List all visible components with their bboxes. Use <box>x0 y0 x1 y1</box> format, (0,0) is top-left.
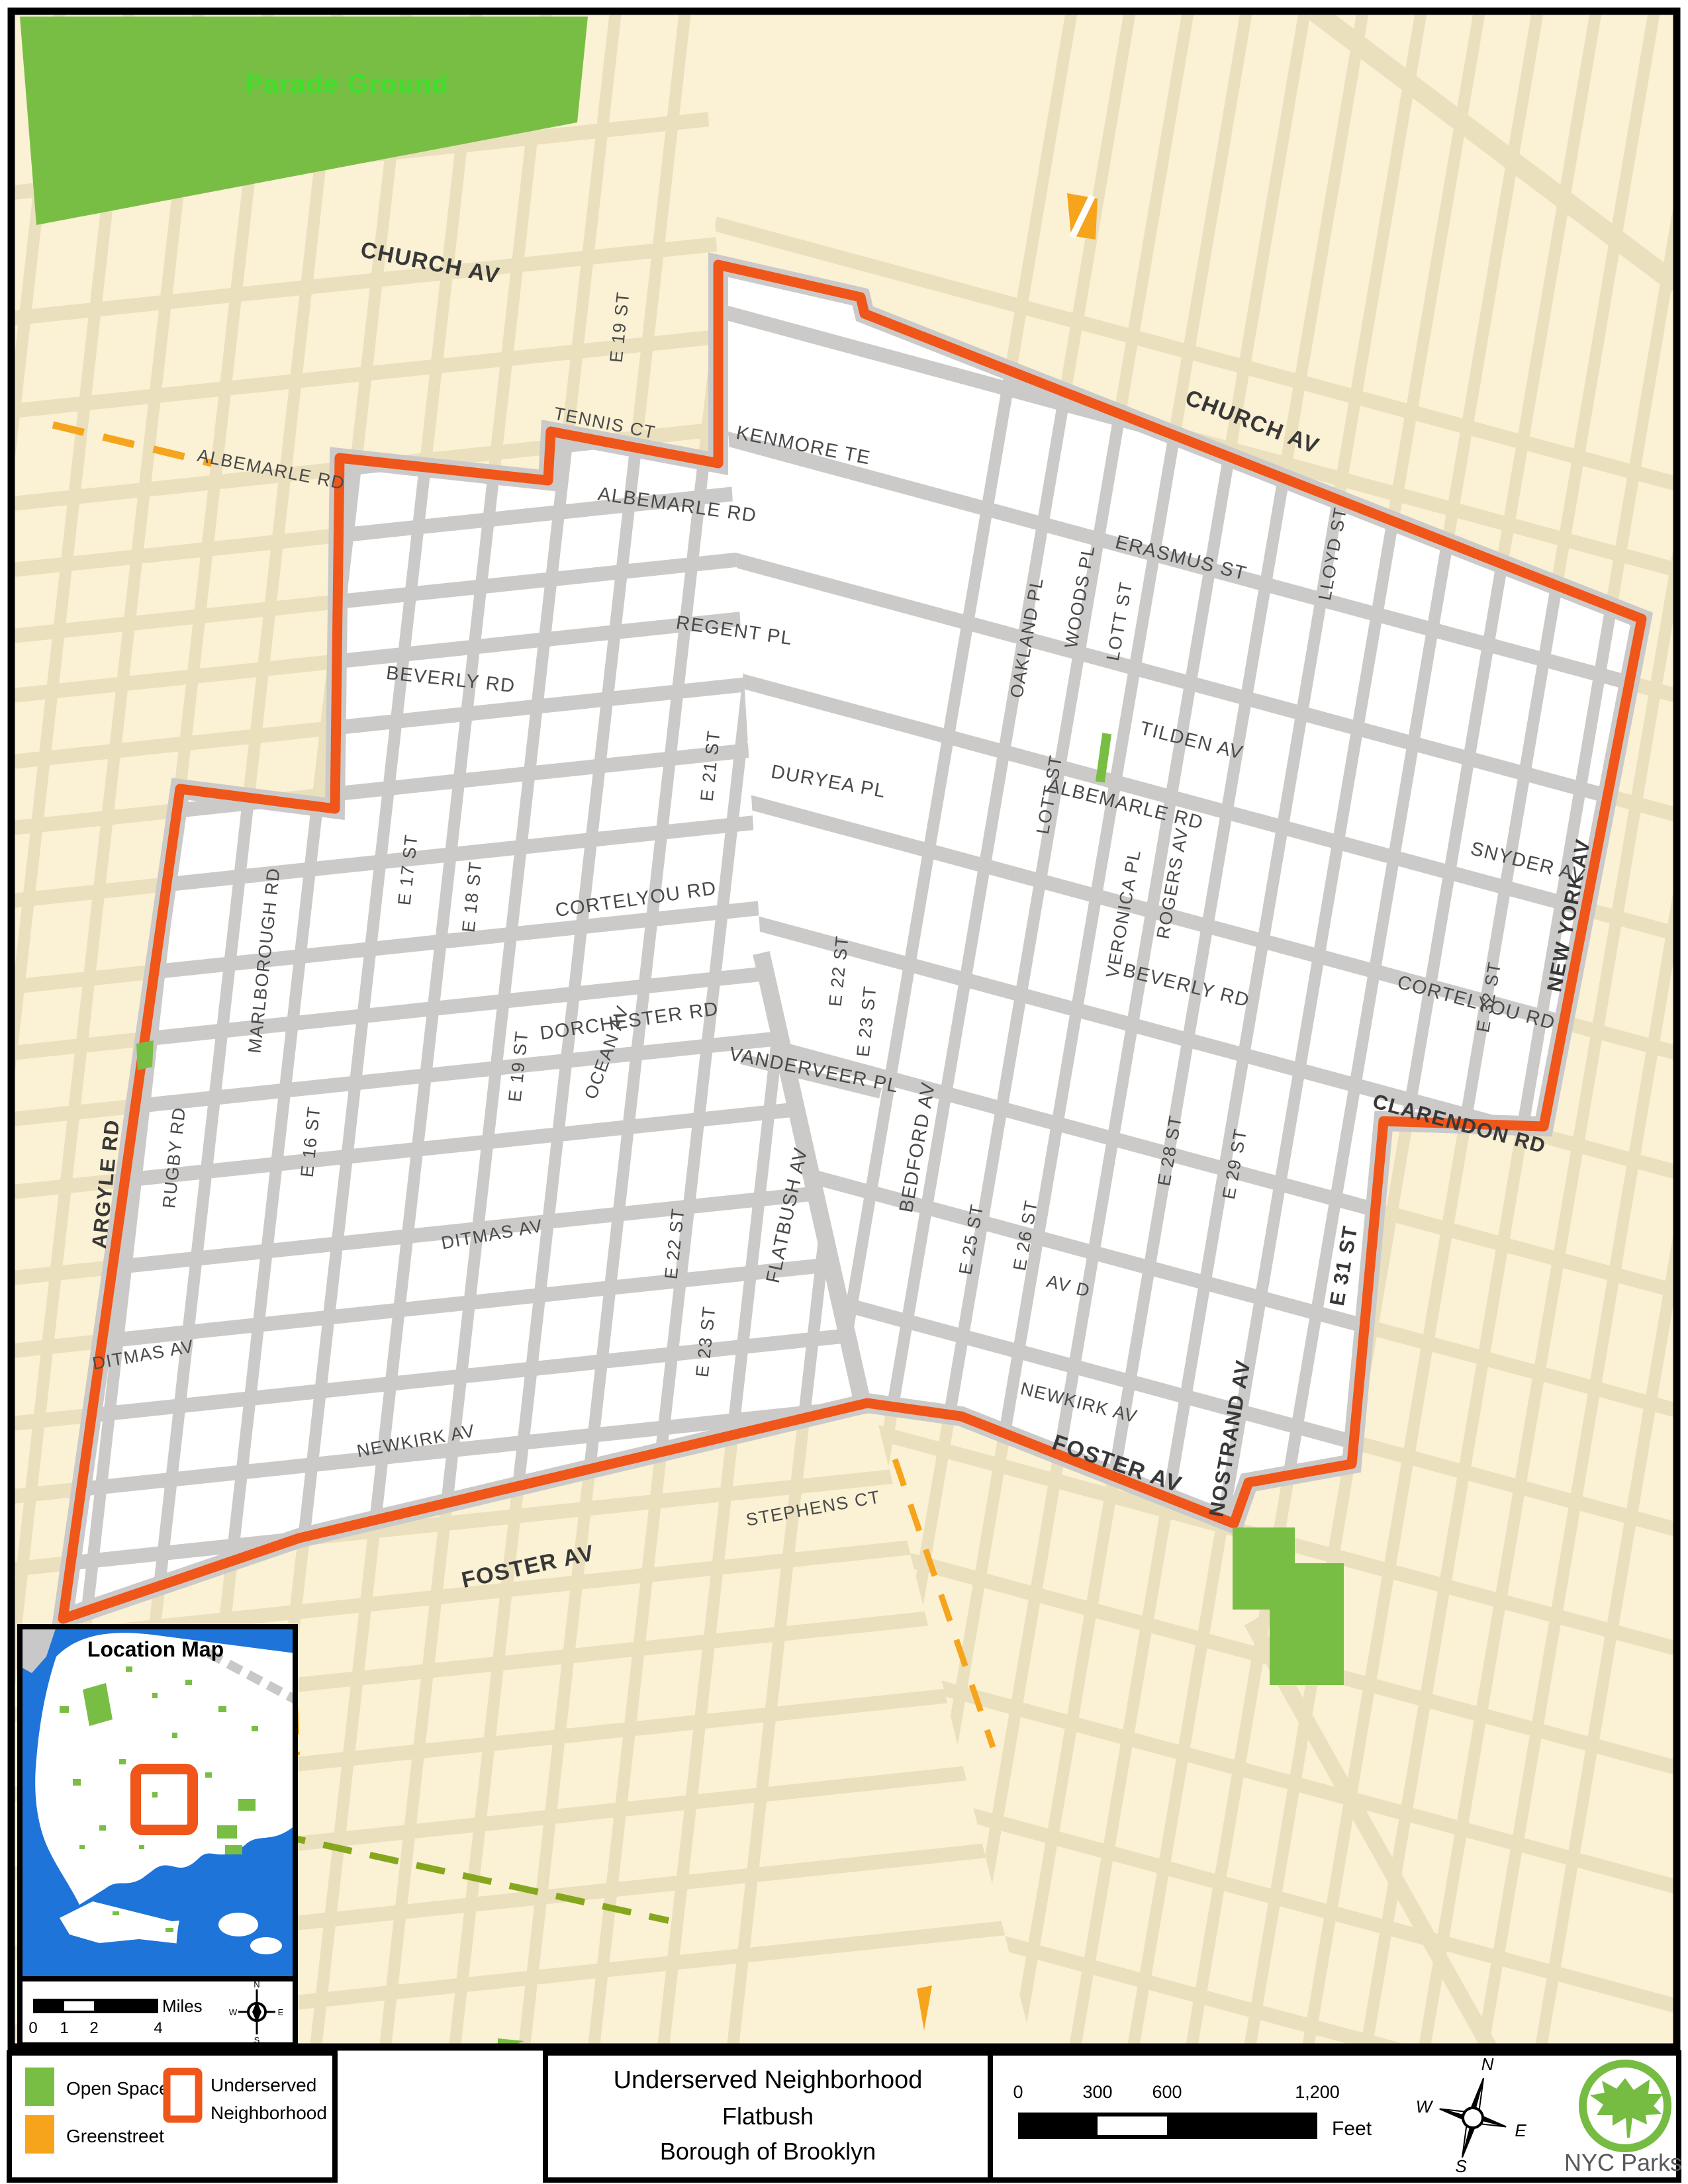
svg-text:0: 0 <box>1013 2082 1023 2102</box>
feet-scale-bar <box>1018 2113 1317 2139</box>
svg-text:1: 1 <box>60 2019 68 2037</box>
svg-text:N: N <box>1481 2054 1494 2074</box>
location-map-inset: Location Map <box>20 1627 295 1979</box>
inset-bay-island <box>218 1913 258 1936</box>
inset-scale-box: Miles 0 1 2 4 N S W E <box>20 1979 295 2045</box>
svg-text:4: 4 <box>154 2019 162 2037</box>
svg-text:S: S <box>1455 2156 1467 2176</box>
greenstreet-swatch <box>25 2115 54 2154</box>
open-space-swatch <box>25 2068 54 2106</box>
parade-ground-label: Parade Ground <box>245 69 449 99</box>
underserved-label-line1: Underserved <box>211 2075 316 2095</box>
svg-text:E: E <box>1515 2120 1526 2140</box>
scalebar-box: 0 300 600 1,200 Feet N S W E <box>990 2053 1682 2180</box>
logo-text: NYC Parks <box>1564 2149 1682 2176</box>
inset-bay-island-2 <box>250 1937 282 1954</box>
feet-unit-label: Feet <box>1332 2118 1372 2140</box>
svg-text:1,200: 1,200 <box>1295 2082 1340 2102</box>
underserved-boundary-swatch <box>167 2071 199 2119</box>
svg-text:W: W <box>229 2007 238 2017</box>
title-box: Underserved Neighborhood Flatbush Boroug… <box>545 2053 990 2180</box>
svg-text:600: 600 <box>1152 2082 1182 2102</box>
miles-scale-bar <box>33 1999 158 2013</box>
svg-text:2: 2 <box>89 2019 98 2037</box>
svg-text:E: E <box>278 2007 284 2017</box>
svg-text:N: N <box>254 1979 259 1989</box>
greenstreet-label: Greenstreet <box>66 2126 164 2146</box>
svg-text:S: S <box>254 2035 260 2045</box>
legend-box: Open Space Greenstreet Underserved Neigh… <box>9 2053 335 2180</box>
main-map: Parade Ground <box>0 0 1688 2184</box>
map-title-line2: Flatbush <box>722 2103 814 2130</box>
open-space-label: Open Space <box>66 2078 169 2099</box>
map-title-line3: Borough of Brooklyn <box>660 2138 876 2165</box>
svg-text:0: 0 <box>28 2019 37 2037</box>
miles-unit-label: Miles <box>162 1996 203 2016</box>
svg-text:W: W <box>1416 2097 1434 2116</box>
map-title-line1: Underserved Neighborhood <box>614 2066 923 2094</box>
underserved-label-line2: Neighborhood <box>211 2103 327 2123</box>
map-sheet: Parade Ground <box>0 0 1688 2184</box>
svg-text:300: 300 <box>1082 2082 1112 2102</box>
location-map-title: Location Map <box>87 1637 224 1661</box>
